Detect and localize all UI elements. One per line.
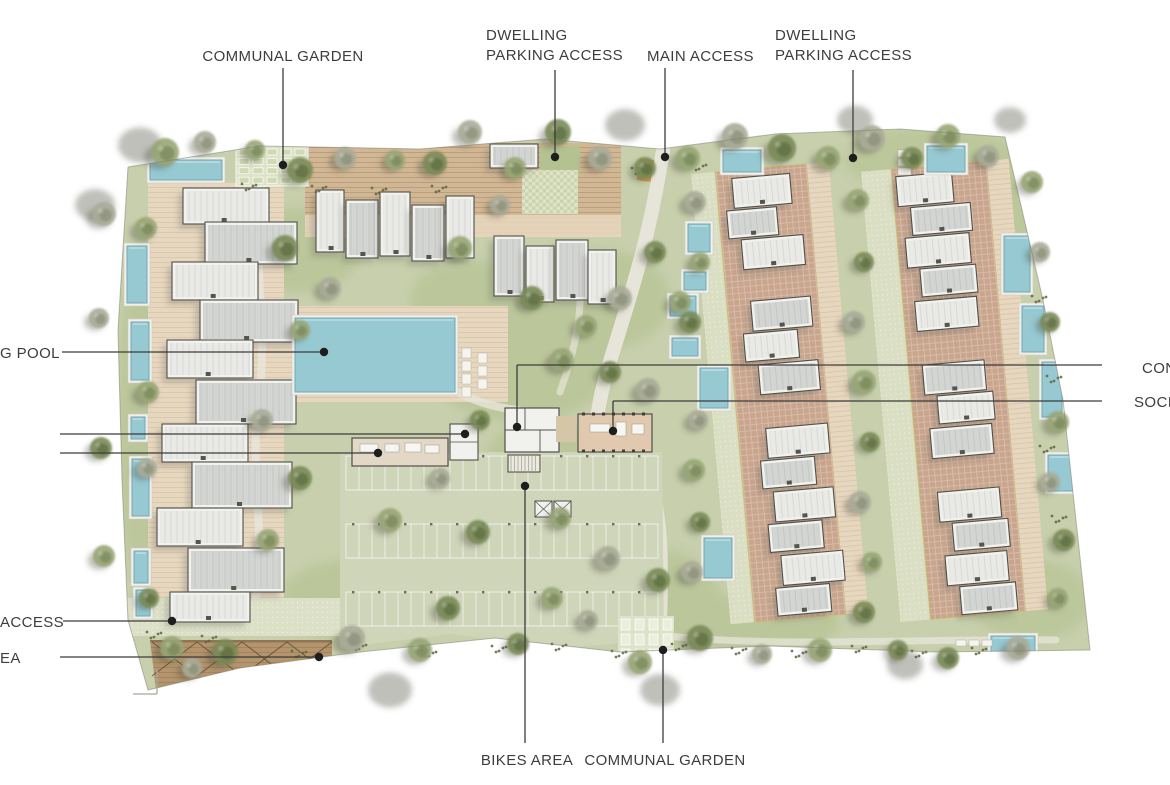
site-plan-artwork <box>0 0 1170 785</box>
site-plan-page: COMMUNAL GARDEN DWELLING PARKING ACCESS … <box>0 0 1170 785</box>
